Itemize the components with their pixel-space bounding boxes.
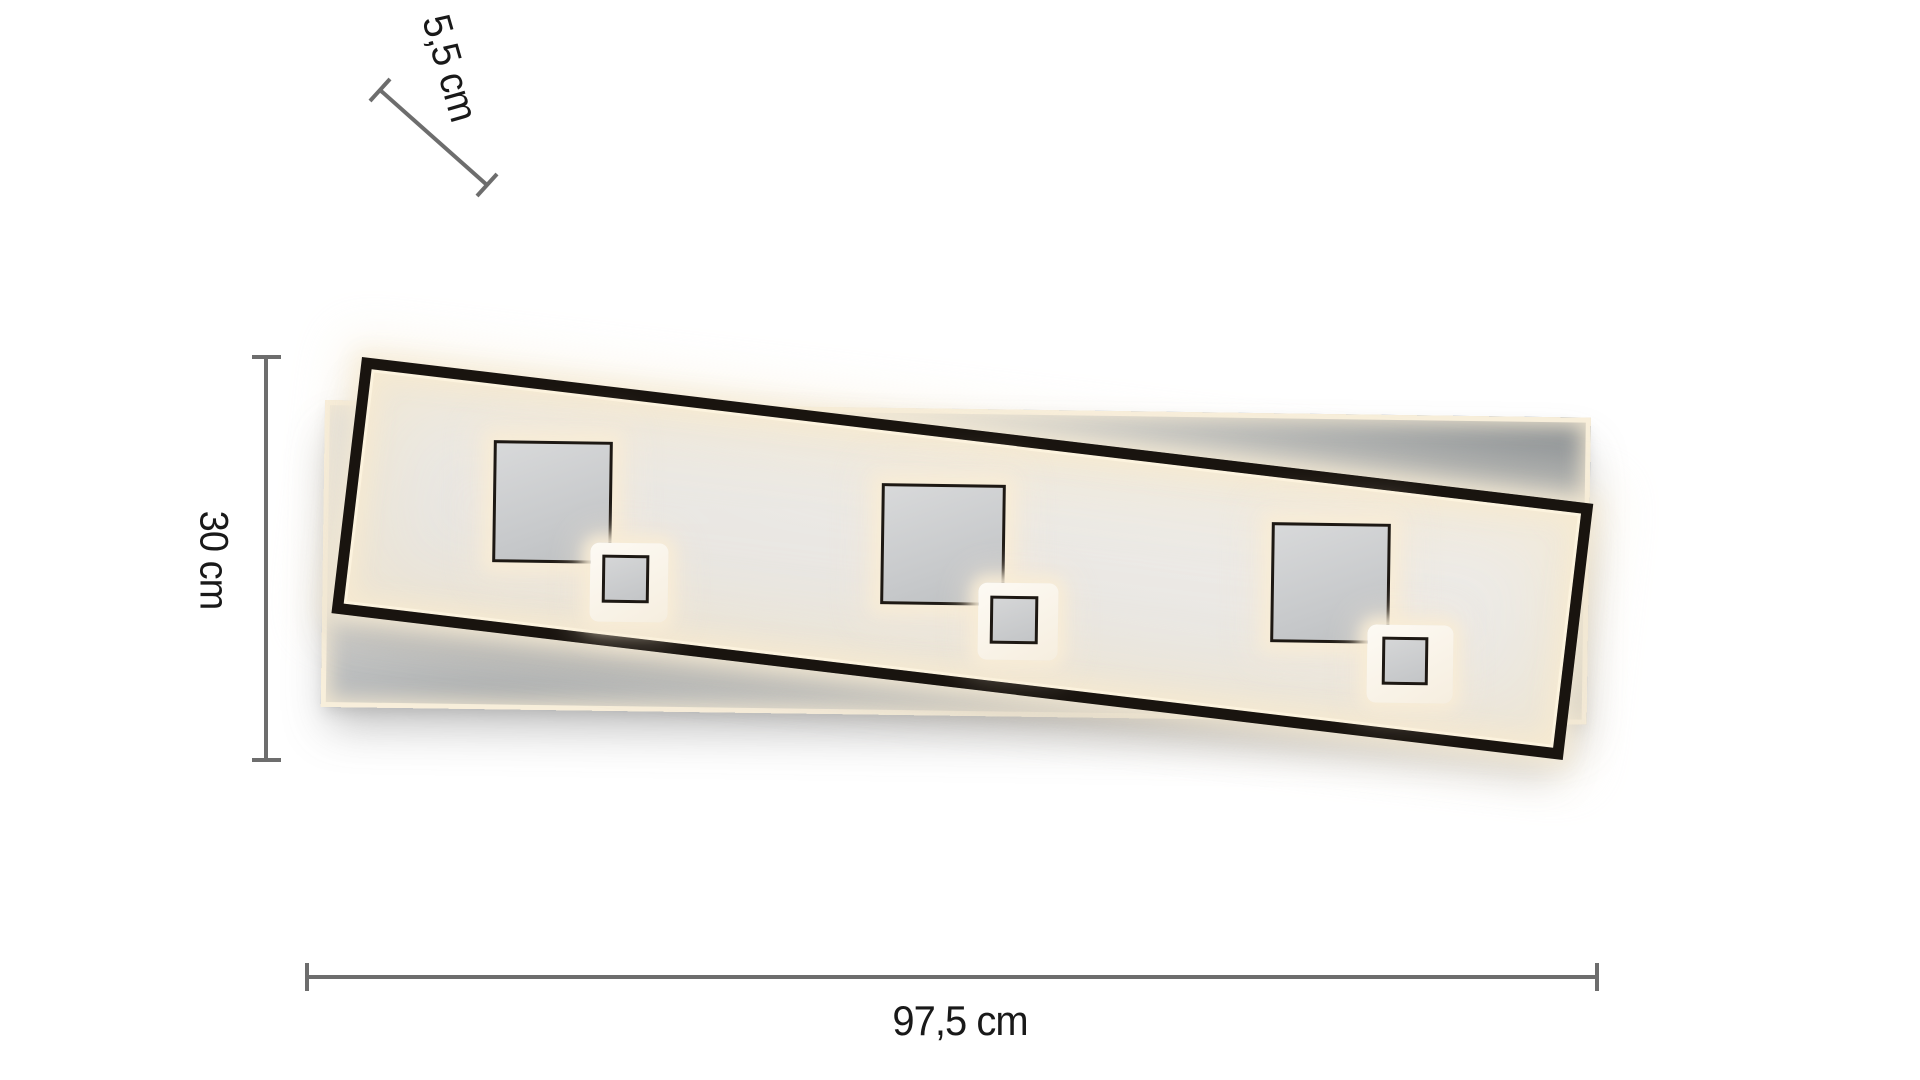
width-dimension-line: [307, 963, 1597, 991]
dimension-lines: [0, 0, 1920, 1080]
height-dimension-label: 30 cm: [191, 511, 236, 610]
height-dimension-line: [252, 357, 281, 760]
product-dimension-diagram: 5,5 cm 30 cm 97,5 cm: [0, 0, 1920, 1080]
width-dimension-label: 97,5 cm: [892, 997, 1027, 1045]
